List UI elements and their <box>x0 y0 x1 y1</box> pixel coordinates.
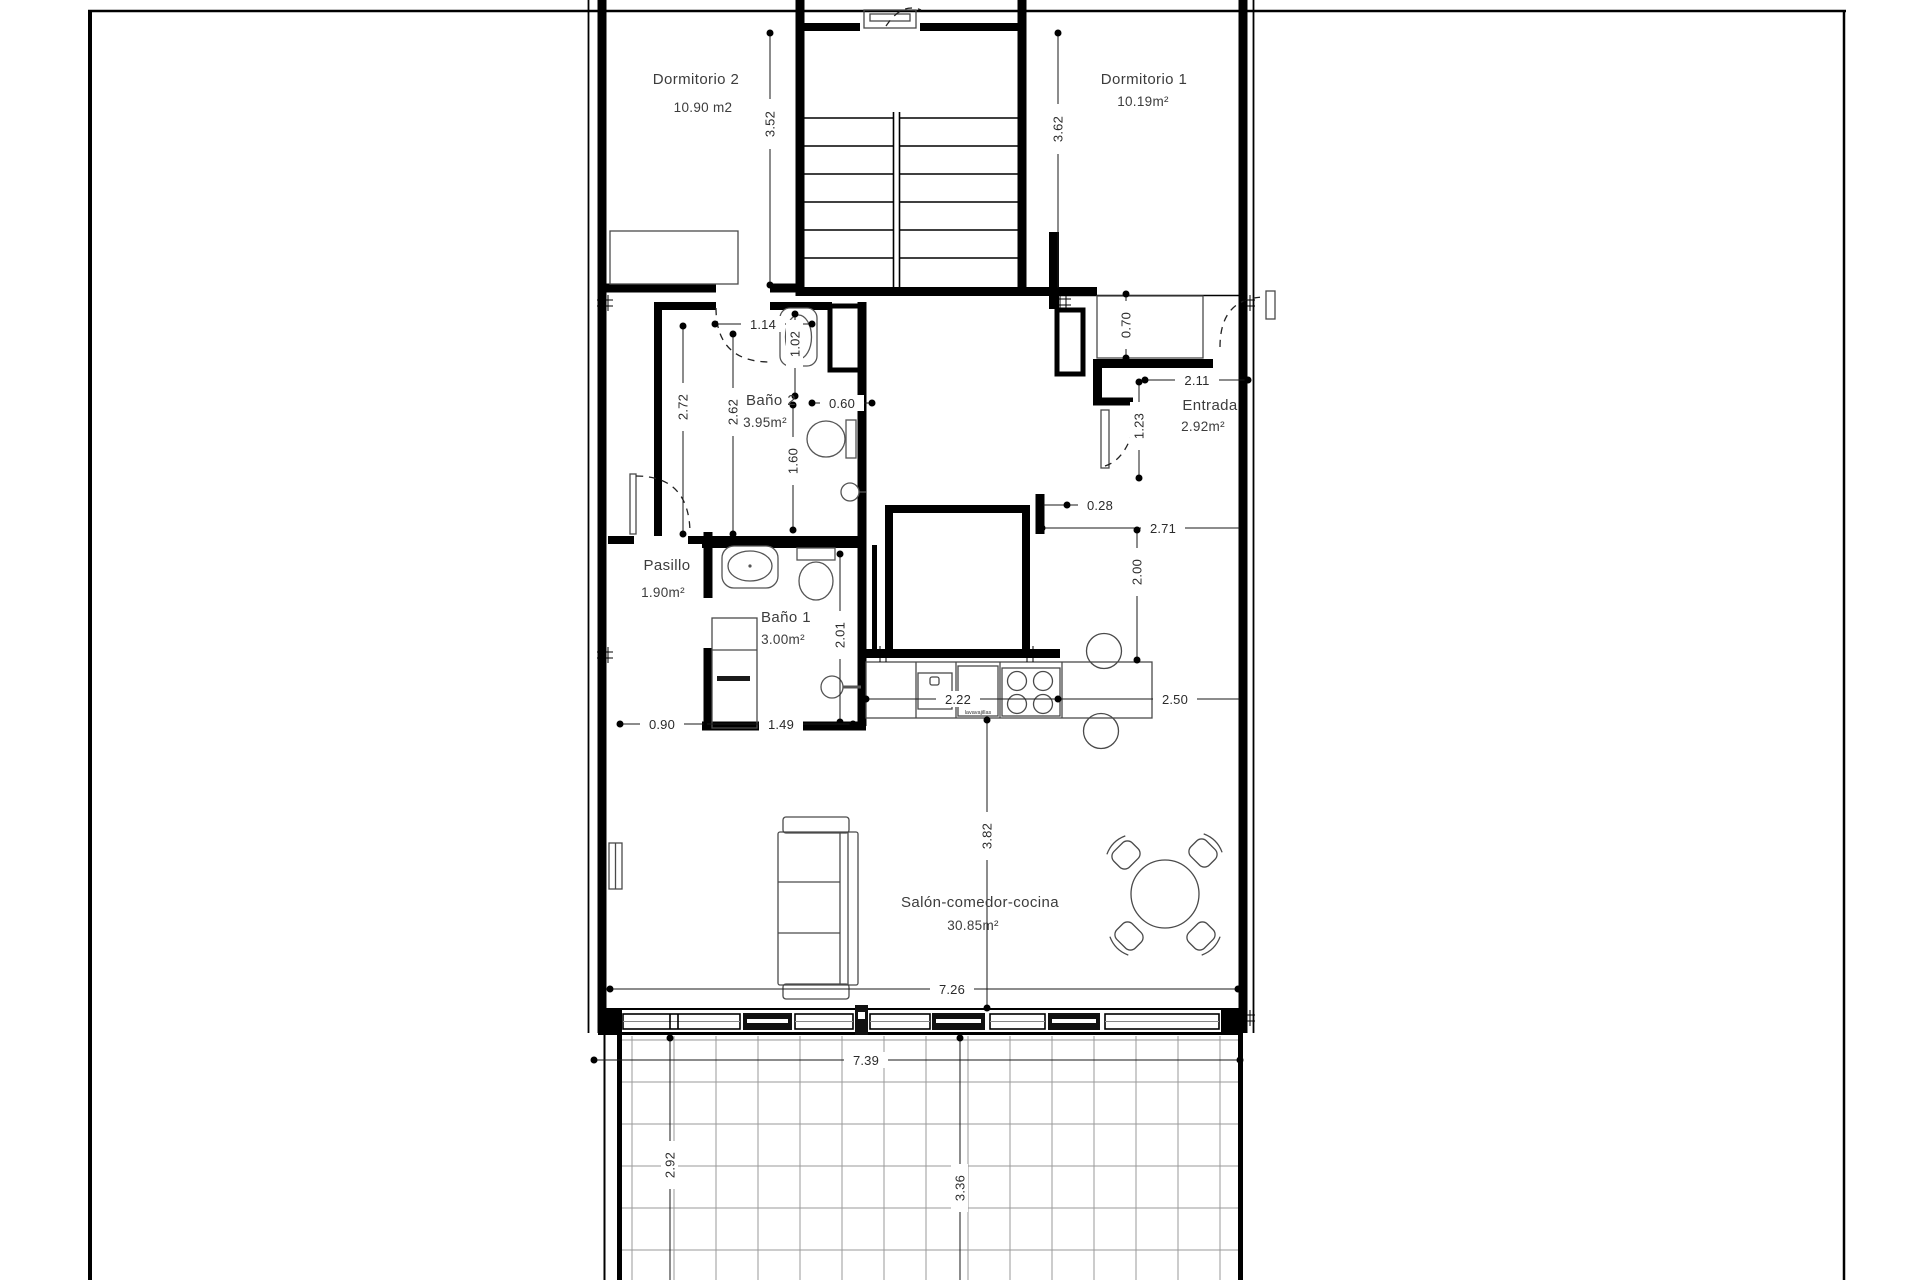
dim-label: 2.11 <box>1184 373 1209 388</box>
dim-1-02: 1.02 <box>786 311 803 400</box>
dim-label: 2.71 <box>1150 521 1176 536</box>
tv-unit-icon <box>609 843 622 889</box>
dim-label: 2.92 <box>663 1152 678 1178</box>
dim-2-01: 2.01 <box>831 551 848 726</box>
dim-2-00: 2.00 <box>1128 527 1145 664</box>
dim-2-22-2-50: 2.22 2.50 <box>863 691 1247 707</box>
patio-shaft <box>862 509 1060 654</box>
dim-2-71: 2.71 <box>1039 520 1247 536</box>
salon-window-band <box>598 1005 1243 1035</box>
bano2-toilet-icon <box>807 420 856 458</box>
chair-icon <box>1186 832 1224 870</box>
pasillo-bano1-walls <box>630 474 866 730</box>
chair-icon <box>1108 919 1146 957</box>
shower-label-strip <box>717 676 750 681</box>
dim-0-70: 0.70 <box>1117 291 1134 362</box>
stool-icon <box>1084 714 1119 749</box>
dim-7-26: 7.26 <box>607 981 1242 997</box>
dim-label: 1.23 <box>1132 413 1147 439</box>
chair-icon <box>1105 834 1143 872</box>
hob-icon <box>1002 668 1060 716</box>
room-pasillo-area: 1.90m² <box>641 585 685 600</box>
dim-label: 2.50 <box>1162 692 1188 707</box>
floor-plan-canvas: 3.52 3.62 1.14 1.02 2.72 2.62 <box>0 0 1920 1280</box>
shower-tray-icon <box>712 618 757 728</box>
dim-label: 2.00 <box>1130 559 1145 585</box>
dim-3-82: 3.82 <box>978 717 995 1012</box>
bano1-toilet-icon <box>797 548 835 600</box>
bano2-walls <box>608 302 866 726</box>
dim-label: 7.39 <box>853 1053 879 1068</box>
dim-3-36: 3.36 <box>951 1035 968 1280</box>
dim-label: 2.62 <box>726 399 741 425</box>
dim-label: 0.70 <box>1119 312 1134 338</box>
dim-label: 3.62 <box>1051 116 1066 142</box>
dim-label: 0.60 <box>829 396 855 411</box>
room-bano1-name: Baño 1 <box>761 609 811 626</box>
room-entrada-area: 2.92m² <box>1181 419 1225 434</box>
dim-label: 0.28 <box>1087 498 1113 513</box>
dim-label: 1.60 <box>786 448 801 474</box>
dormitorio2-closet <box>610 231 738 284</box>
room-bano1-area: 3.00m² <box>761 632 805 647</box>
room-bano2-area: 3.95m² <box>743 415 787 430</box>
room-pasillo-name: Pasillo <box>644 557 691 574</box>
dim-label: 3.52 <box>763 111 778 137</box>
dishwasher-label: lavavajillas <box>965 710 992 716</box>
dim-label: 2.72 <box>676 394 691 420</box>
dim-0-28: 0.28 <box>1037 497 1123 513</box>
dim-3-52: 3.52 <box>761 30 778 289</box>
dim-2-72: 2.72 <box>674 323 691 538</box>
stool-icon <box>1087 634 1122 669</box>
terrace-grid <box>622 1036 1238 1280</box>
room-bano2-name: Baño 2 <box>746 392 796 409</box>
dim-2-11: 2.11 <box>1142 372 1252 388</box>
room-salon-area: 30.85m² <box>947 918 999 933</box>
wall-niche <box>830 306 862 370</box>
room-labels: Dormitorio 2 10.90 m2 Dormitorio 1 10.19… <box>641 71 1238 933</box>
window-glazing <box>623 1014 1219 1029</box>
entry-duct <box>1057 310 1083 374</box>
dim-label: 7.26 <box>939 982 965 997</box>
landing-doormat <box>864 10 916 28</box>
room-dormitorio1-name: Dormitorio 1 <box>1101 71 1188 88</box>
dim-label: 2.01 <box>833 622 848 648</box>
dim-7-39: 7.39 <box>591 1052 1244 1068</box>
room-dormitorio2-area: 10.90 m2 <box>674 100 733 115</box>
shower-drain-icon <box>821 676 861 698</box>
dim-label: 0.90 <box>649 717 675 732</box>
dim-label: 1.14 <box>750 317 776 332</box>
wall-hatch-markers <box>597 294 1255 1026</box>
floor-plan-drawing: 3.52 3.62 1.14 1.02 2.72 2.62 <box>0 0 1920 1280</box>
room-dormitorio1-area: 10.19m² <box>1117 94 1169 109</box>
page-frame <box>88 10 1846 1280</box>
interior-walls-top <box>598 231 1243 402</box>
dim-2-62: 2.62 <box>724 331 741 538</box>
chair-icon <box>1184 919 1222 957</box>
stair-treads <box>805 112 1018 287</box>
dim-label: 1.49 <box>768 717 794 732</box>
dim-2-92: 2.92 <box>661 1035 678 1280</box>
dining-table-icon <box>1105 832 1224 957</box>
stairwell <box>796 0 1026 296</box>
room-salon-name: Salón-comedor-cocina <box>901 894 1059 911</box>
sofa-icon <box>778 817 858 999</box>
room-dormitorio2-name: Dormitorio 2 <box>653 71 740 88</box>
room-entrada-name: Entrada <box>1182 397 1238 414</box>
dim-label: 3.36 <box>953 1175 968 1201</box>
dim-label: 2.22 <box>945 692 971 707</box>
dim-1-23: 1.23 <box>1130 379 1147 482</box>
dormitorio1-closet <box>1097 296 1203 358</box>
bano1-washbasin-icon <box>722 546 778 588</box>
dim-0-90: 0.90 <box>617 716 711 732</box>
dim-label: 1.02 <box>788 331 803 357</box>
dim-label: 3.82 <box>980 823 995 849</box>
exterior-walls <box>589 0 1254 1280</box>
